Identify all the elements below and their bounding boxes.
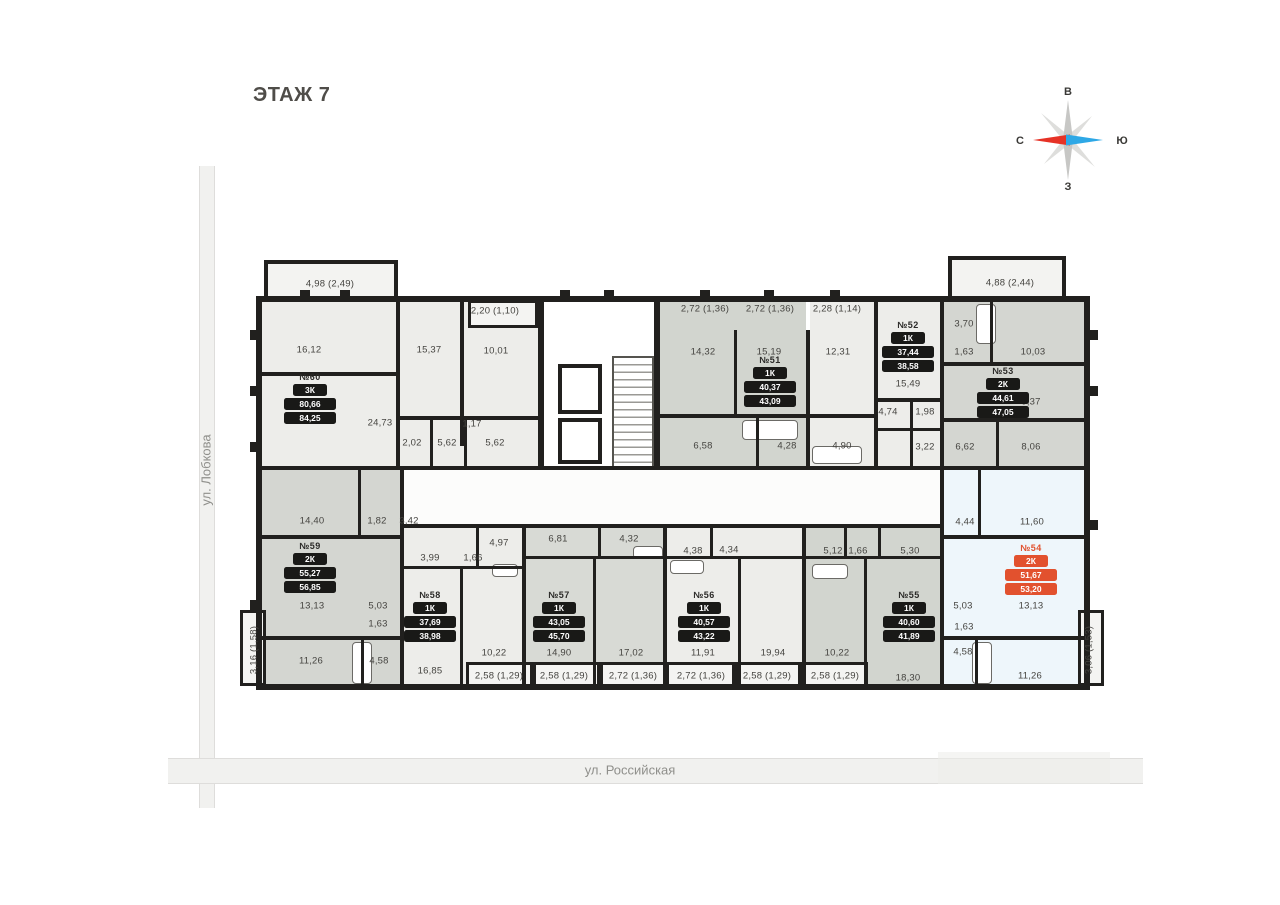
room-area-label: 19,94	[761, 648, 786, 659]
apartment-total-area: 47,05	[977, 406, 1029, 418]
room-area-label: 2,72 (1,36)	[677, 671, 725, 682]
room-area-label: 1,66	[463, 553, 482, 564]
room-area-label: 4,98 (2,49)	[306, 279, 354, 290]
window-tick	[300, 290, 310, 298]
wall	[593, 556, 596, 684]
bathtub-fixture	[812, 564, 848, 579]
room-area-label: 4,97	[489, 538, 508, 549]
apartment-number: №53	[971, 366, 1035, 376]
apartment-number: №56	[672, 590, 736, 600]
room-area-label: 10,03	[1021, 347, 1046, 358]
window-tick	[830, 290, 840, 298]
wall	[975, 640, 978, 684]
room-area-label: 14,32	[691, 347, 716, 358]
room-area-label: 5,03	[368, 601, 387, 612]
apartment-total-area: 43,22	[678, 630, 730, 642]
window-tick	[1090, 386, 1098, 396]
room-area-label: 5,62	[437, 438, 456, 449]
room-area-label: 1,66	[848, 546, 867, 557]
watermark	[938, 752, 1110, 784]
window-tick	[604, 290, 614, 298]
room-area-label: 13,13	[1019, 601, 1044, 612]
room-area-label: 2,02	[402, 438, 421, 449]
room-area-label: 2,72 (1,36)	[681, 304, 729, 315]
window-tick	[764, 290, 774, 298]
window-tick	[340, 290, 350, 298]
wall	[358, 470, 361, 535]
room-area-label: 4,32	[619, 534, 638, 545]
apartment-number: №52	[876, 320, 940, 330]
apartment-number: №55	[877, 590, 941, 600]
room-area-label: 2,72 (1,36)	[609, 671, 657, 682]
room-area-label: 10,22	[482, 648, 507, 659]
room-area-label: 16,12	[297, 345, 322, 356]
apartment-room-type: 1К	[413, 602, 447, 614]
corridor-region	[402, 470, 942, 524]
room-area-label: 10,22	[825, 648, 850, 659]
apartment-living-area: 51,67	[1005, 569, 1057, 581]
apartment-badge-53[interactable]: №532К44,6147,05	[971, 366, 1035, 418]
room-area-label: 1,63	[954, 347, 973, 358]
room-area-label: 2,58 (1,29)	[475, 671, 523, 682]
apartment-number: №60	[278, 372, 342, 382]
room-area-label: 11,26	[1018, 671, 1042, 682]
compass-label-right: Ю	[1116, 135, 1127, 147]
apartment-badge-60[interactable]: №603К80,6684,25	[278, 372, 342, 424]
window-tick	[250, 330, 258, 340]
room-area-label: 2,58 (1,29)	[743, 671, 791, 682]
apartment-living-area: 40,37	[744, 381, 796, 393]
apartment-badge-59[interactable]: №592К55,2756,85	[278, 541, 342, 593]
apartment-total-area: 41,89	[883, 630, 935, 642]
room-area-label: 3,42	[399, 516, 418, 527]
apartment-living-area: 80,66	[284, 398, 336, 410]
apartment-number: №58	[398, 590, 462, 600]
wall	[944, 535, 1084, 539]
apartment-room-type: 1К	[753, 367, 787, 379]
wall	[802, 528, 806, 684]
compass-label-top: В	[1064, 86, 1072, 98]
wall	[978, 470, 981, 535]
window-tick	[1090, 330, 1098, 340]
apartment-living-area: 44,61	[977, 392, 1029, 404]
room-area-label: 5,12	[823, 546, 842, 557]
apartment-living-area: 55,27	[284, 567, 336, 579]
room-area-label: 5,03	[953, 601, 972, 612]
window-tick	[250, 442, 258, 452]
wall	[996, 420, 999, 466]
wall	[262, 535, 400, 539]
room-area-label: 15,37	[417, 345, 442, 356]
wall	[806, 330, 810, 468]
room-area-label: 17,02	[619, 648, 644, 659]
floor-plan-page: ЭТАЖ 7 ул. Лобкова ул. Российская В Ю С …	[0, 0, 1280, 905]
apartment-badge-54[interactable]: №542К51,6753,20	[999, 543, 1063, 595]
room-area-label: 4,90	[832, 441, 851, 452]
room-area-label: 1,98	[915, 407, 934, 418]
room-area-label: 24,73	[368, 418, 393, 429]
room-area-label: 2,72 (1,36)	[746, 304, 794, 315]
wall	[878, 528, 881, 556]
window-tick	[700, 290, 710, 298]
room-area-label: 3,22	[915, 442, 934, 453]
room-area-label: 8,06	[1021, 442, 1040, 453]
wall	[874, 398, 940, 402]
apartment-badge-51[interactable]: №511К40,3743,09	[738, 355, 802, 407]
apartment-badge-58[interactable]: №581К37,6938,98	[398, 590, 462, 642]
apartment-living-area: 40,57	[678, 616, 730, 628]
elevator	[558, 364, 602, 414]
compass-label-bottom: З	[1065, 181, 1072, 193]
apartment-total-area: 56,85	[284, 581, 336, 593]
room-area-label: 3,99	[420, 553, 439, 564]
apartment-number: №51	[738, 355, 802, 365]
bathtub-fixture	[742, 420, 798, 440]
room-area-label: 1,82	[367, 516, 386, 527]
wall	[756, 416, 759, 466]
wall	[396, 302, 400, 468]
apartment-total-area: 84,25	[284, 412, 336, 424]
apartment-room-type: 1К	[891, 332, 925, 344]
apartment-room-type: 2К	[1014, 555, 1048, 567]
room-area-label: 4,58	[369, 656, 388, 667]
bathtub-fixture	[976, 304, 996, 344]
room-area-label: 11,60	[1020, 517, 1044, 528]
room-area-label: 4,28	[777, 441, 796, 452]
room-area-label: 4,58	[953, 647, 972, 658]
wall	[262, 466, 1084, 470]
wall	[262, 636, 400, 640]
apartment-number: №54	[999, 543, 1063, 553]
room-area-label: 4,38	[683, 546, 702, 557]
apartment-badge-55[interactable]: №551К40,6041,89	[877, 590, 941, 642]
room-area-label: 14,90	[547, 648, 572, 659]
apartment-badge-56[interactable]: №561К40,5743,22	[672, 590, 736, 642]
wall	[990, 302, 993, 362]
room-area-label: 4,34	[719, 545, 738, 556]
wall	[942, 418, 1084, 422]
room-area-label: 6,58	[693, 441, 712, 452]
room-area-label: 3,16 (1,58)	[249, 626, 260, 674]
wall	[910, 398, 913, 466]
apartment-living-area: 37,44	[882, 346, 934, 358]
room-area-label: 1,63	[954, 622, 973, 633]
room-area-label: 4,44	[955, 517, 974, 528]
page-title: ЭТАЖ 7	[253, 84, 330, 107]
room-area-label: 1,17	[462, 419, 481, 430]
room-area-label: 2,20 (1,10)	[471, 306, 519, 317]
apartment-room-type: 2К	[986, 378, 1020, 390]
wall	[734, 330, 737, 416]
apartment-total-area: 38,58	[882, 360, 934, 372]
wall	[654, 302, 660, 468]
apartment-living-area: 40,60	[883, 616, 935, 628]
window-tick	[560, 290, 570, 298]
apartment-total-area: 43,09	[744, 395, 796, 407]
room-area-label: 2,58 (1,29)	[811, 671, 859, 682]
room-area-label: 3,06 (1,53)	[1084, 626, 1095, 674]
room-area-label: 3,70	[954, 319, 973, 330]
wall	[400, 524, 944, 528]
apartment-room-type: 1К	[687, 602, 721, 614]
wall	[738, 556, 741, 684]
room-area-label: 4,74	[878, 407, 897, 418]
wall	[256, 296, 1090, 302]
room-area-label: 18,30	[896, 673, 921, 684]
street-label-rossiyskaya: ул. Российская	[585, 763, 676, 778]
wall	[710, 528, 713, 556]
room-area-label: 14,40	[300, 516, 325, 527]
wall	[538, 302, 544, 468]
room-area-label: 6,81	[548, 534, 567, 545]
elevator	[558, 418, 602, 464]
wall	[876, 428, 940, 431]
wall	[663, 528, 667, 684]
wall	[658, 414, 874, 418]
apartment-room-type: 1К	[542, 602, 576, 614]
room-area-label: 2,58 (1,29)	[540, 671, 588, 682]
window-tick	[1090, 520, 1098, 530]
staircase	[612, 356, 654, 468]
room-area-label: 11,26	[299, 656, 323, 667]
wall	[944, 636, 1084, 640]
wall	[522, 528, 526, 684]
apartment-living-area: 43,05	[533, 616, 585, 628]
room-area-label: 16,85	[418, 666, 443, 677]
bathtub-fixture	[670, 560, 704, 574]
apartment-total-area: 38,98	[404, 630, 456, 642]
compass-label-left: С	[1016, 135, 1024, 147]
room-area-label: 1,63	[368, 619, 387, 630]
wall	[361, 640, 364, 684]
room-area-label: 10,01	[484, 346, 509, 357]
apartment-number: №57	[527, 590, 591, 600]
street-label-lobkova: ул. Лобкова	[199, 434, 214, 505]
room-area-label: 11,91	[691, 648, 715, 659]
window-tick	[250, 386, 258, 396]
room-area-label: 12,31	[826, 347, 851, 358]
wall	[598, 528, 601, 556]
wall	[844, 528, 847, 556]
apartment-room-type: 1К	[892, 602, 926, 614]
apartment-total-area: 45,70	[533, 630, 585, 642]
room-area-label: 5,62	[485, 438, 504, 449]
apartment-number: №59	[278, 541, 342, 551]
wall	[256, 684, 1090, 690]
room-area-label: 2,28 (1,14)	[813, 304, 861, 315]
wall	[400, 466, 404, 684]
room-area-label: 13,13	[300, 601, 325, 612]
wall	[864, 556, 867, 684]
room-area-label: 4,88 (2,44)	[986, 278, 1034, 289]
wall	[430, 420, 433, 466]
room-area-label: 5,30	[900, 546, 919, 557]
room-area-label: 6,62	[955, 442, 974, 453]
room-area-label: 15,49	[896, 379, 921, 390]
apartment-room-type: 2К	[293, 553, 327, 565]
window-tick	[250, 600, 258, 610]
apartment-badge-52[interactable]: №521К37,4438,58	[876, 320, 940, 372]
apartment-room-type: 3К	[293, 384, 327, 396]
apartment-living-area: 37,69	[404, 616, 456, 628]
apartment-badge-57[interactable]: №571К43,0545,70	[527, 590, 591, 642]
apartment-total-area: 53,20	[1005, 583, 1057, 595]
